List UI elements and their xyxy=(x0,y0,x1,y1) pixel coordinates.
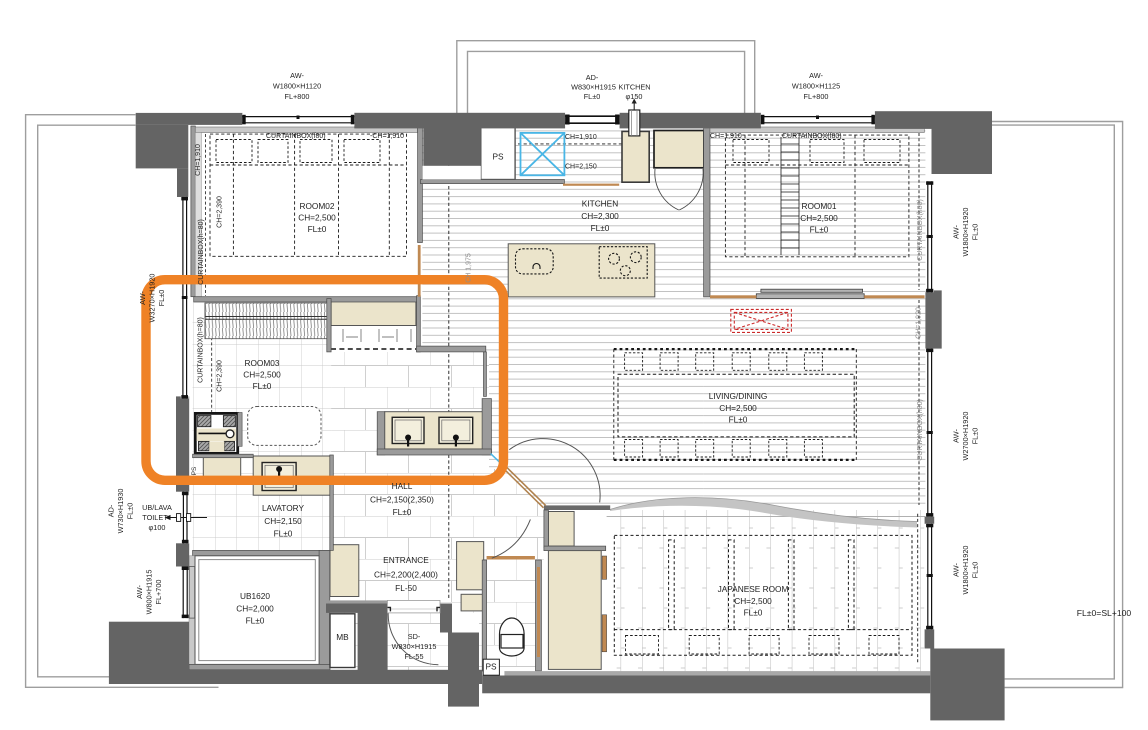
svg-text:FL±0: FL±0 xyxy=(729,415,748,425)
svg-text:CH=2,500: CH=2,500 xyxy=(298,213,336,223)
svg-text:FL+800: FL+800 xyxy=(285,92,310,101)
svg-text:W1800×H1920: W1800×H1920 xyxy=(961,208,970,257)
svg-text:FL±0: FL±0 xyxy=(274,529,293,539)
svg-text:CURTAINBOX(h=80): CURTAINBOX(h=80) xyxy=(198,317,205,383)
svg-text:ROOM03: ROOM03 xyxy=(244,358,279,368)
svg-text:CH=2,390: CH=2,390 xyxy=(217,360,224,392)
svg-text:FL±0: FL±0 xyxy=(971,428,980,445)
svg-text:W2700×H1920: W2700×H1920 xyxy=(961,412,970,461)
svg-text:FL±0: FL±0 xyxy=(126,503,135,520)
svg-text:UB1620: UB1620 xyxy=(240,591,270,601)
svg-text:UB/LAVA: UB/LAVA xyxy=(142,503,172,512)
svg-text:CH=1,920: CH=1,920 xyxy=(916,307,923,339)
svg-text:FL±0: FL±0 xyxy=(744,608,763,618)
svg-text:SD-: SD- xyxy=(408,632,421,641)
svg-text:TOILET: TOILET xyxy=(142,513,168,522)
svg-text:CH=2,300: CH=2,300 xyxy=(581,211,619,221)
svg-text:φ100: φ100 xyxy=(149,523,166,532)
svg-text:CH=2,150(2,350): CH=2,150(2,350) xyxy=(370,495,434,505)
svg-text:FL±0=SL+100: FL±0=SL+100 xyxy=(1077,608,1132,618)
svg-text:PS: PS xyxy=(492,152,504,162)
svg-text:ROOM01: ROOM01 xyxy=(801,201,836,211)
svg-text:FL±0: FL±0 xyxy=(253,381,272,391)
svg-text:CH=2,500: CH=2,500 xyxy=(800,213,838,223)
svg-text:CH=1,910: CH=1,910 xyxy=(710,133,742,140)
svg-text:W3270×H1920: W3270×H1920 xyxy=(148,274,157,323)
svg-text:FL±0: FL±0 xyxy=(591,223,610,233)
svg-text:CH=2,500: CH=2,500 xyxy=(719,403,757,413)
svg-text:CH=2,390: CH=2,390 xyxy=(217,196,224,228)
svg-text:FL±0: FL±0 xyxy=(246,616,265,626)
svg-text:CH=2,200(2,400): CH=2,200(2,400) xyxy=(374,570,438,580)
svg-text:W1800×H1920: W1800×H1920 xyxy=(961,546,970,595)
svg-text:CH=2,150: CH=2,150 xyxy=(565,164,597,171)
svg-text:FL±0: FL±0 xyxy=(584,92,601,101)
svg-text:KITCHEN: KITCHEN xyxy=(618,83,650,92)
svg-text:LIVING/DINING: LIVING/DINING xyxy=(709,391,768,401)
svg-text:AD-: AD- xyxy=(586,73,599,82)
svg-text:LAVATORY: LAVATORY xyxy=(262,503,305,513)
svg-text:FL±0: FL±0 xyxy=(810,225,829,235)
svg-text:FL+800: FL+800 xyxy=(804,92,829,101)
svg-text:FL-50: FL-50 xyxy=(395,583,417,593)
svg-text:W830×H1915: W830×H1915 xyxy=(392,642,437,651)
svg-text:AW-: AW- xyxy=(952,429,961,443)
svg-text:FL±0: FL±0 xyxy=(971,562,980,579)
svg-text:PS: PS xyxy=(191,466,198,475)
svg-text:HALL: HALL xyxy=(392,481,413,491)
svg-text:FL±0: FL±0 xyxy=(157,290,166,307)
svg-text:FL+700: FL+700 xyxy=(154,580,163,605)
svg-text:AW-: AW- xyxy=(952,225,961,239)
svg-text:AW-: AW- xyxy=(138,291,147,305)
svg-text:AW-: AW- xyxy=(809,71,823,80)
svg-text:CH=1,910: CH=1,910 xyxy=(565,134,597,141)
svg-text:CH=1,910: CH=1,910 xyxy=(195,144,202,176)
svg-text:FL±0: FL±0 xyxy=(308,224,327,234)
svg-text:FL-55: FL-55 xyxy=(404,652,423,661)
svg-text:CH=2,000: CH=2,000 xyxy=(236,604,274,614)
svg-text:AW-: AW- xyxy=(135,585,144,599)
svg-text:KITCHEN: KITCHEN xyxy=(582,199,618,209)
svg-text:φ150: φ150 xyxy=(626,92,643,101)
svg-text:CURTAINBOX(h80): CURTAINBOX(h80) xyxy=(917,199,924,261)
svg-text:AD-: AD- xyxy=(107,504,116,517)
svg-text:W730×H1930: W730×H1930 xyxy=(116,489,125,534)
svg-text:W830×H1915: W830×H1915 xyxy=(571,83,616,92)
svg-text:FL±0: FL±0 xyxy=(971,224,980,241)
svg-text:ENTRANCE: ENTRANCE xyxy=(383,555,429,565)
svg-text:ROOM02: ROOM02 xyxy=(299,201,334,211)
svg-text:AW-: AW- xyxy=(952,563,961,577)
svg-text:CH=2,500: CH=2,500 xyxy=(734,596,772,606)
svg-text:CH=2,500: CH=2,500 xyxy=(243,370,281,380)
svg-text:AW-: AW- xyxy=(290,71,304,80)
svg-text:CURTAINBOX(h=80): CURTAINBOX(h=80) xyxy=(198,219,205,285)
svg-text:CH=2,150: CH=2,150 xyxy=(264,516,302,526)
svg-text:FL±0: FL±0 xyxy=(393,507,412,517)
svg-text:PS: PS xyxy=(485,662,497,672)
svg-text:CH 1,975: CH 1,975 xyxy=(466,253,473,283)
svg-text:CURTAINBOX(f80): CURTAINBOX(f80) xyxy=(266,133,326,140)
svg-text:W800×H1915: W800×H1915 xyxy=(145,570,154,615)
svg-text:W1800×H1125: W1800×H1125 xyxy=(792,82,840,91)
svg-text:CURTAINBOX(f80): CURTAINBOX(f80) xyxy=(782,133,842,140)
svg-text:W1800×H1120: W1800×H1120 xyxy=(273,82,321,91)
svg-text:MB: MB xyxy=(336,632,349,642)
svg-text:CURTAINBOX(h80): CURTAINBOX(h80) xyxy=(917,399,924,461)
svg-text:JAPANESE ROOM: JAPANESE ROOM xyxy=(718,584,789,594)
svg-text:-CH=1,910: -CH=1,910 xyxy=(370,133,404,140)
